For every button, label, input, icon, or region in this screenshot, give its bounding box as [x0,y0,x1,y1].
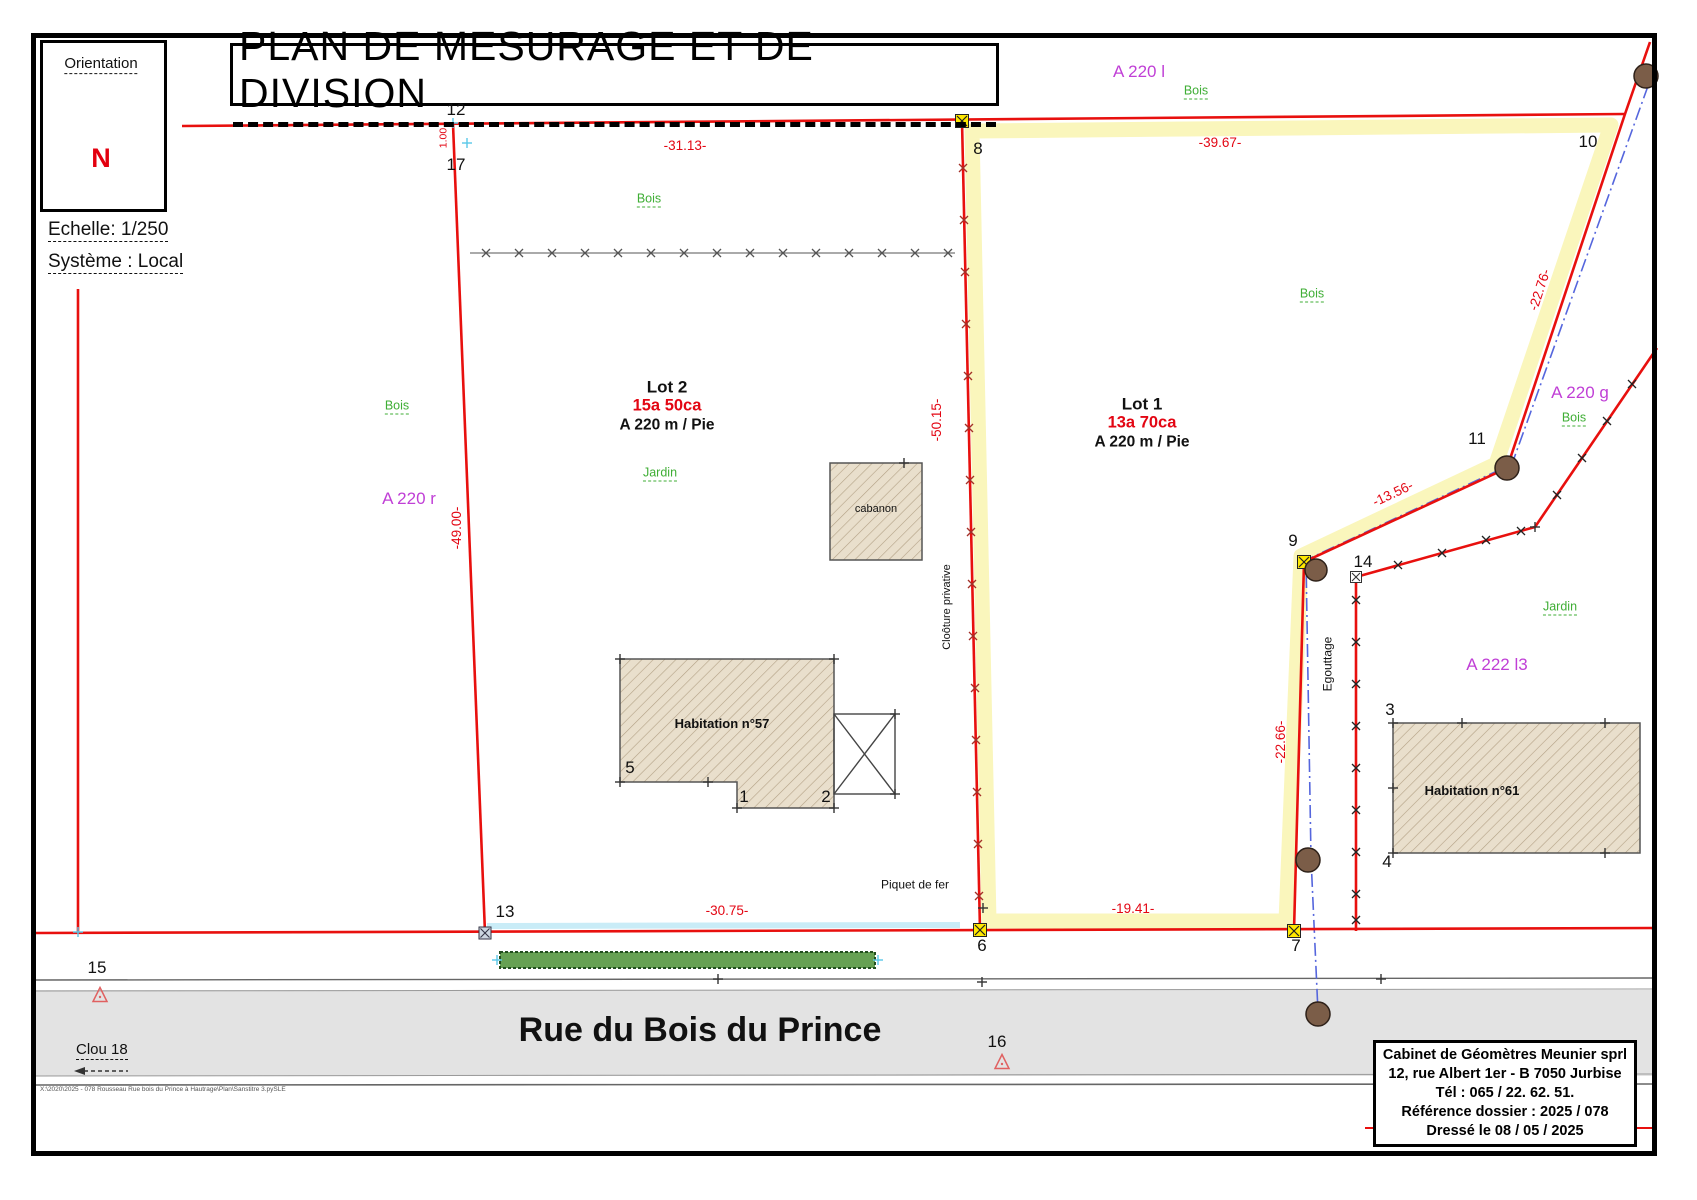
lot1-cadastre: A 220 m / Pie [1094,434,1189,450]
system-label: Système : Local [48,252,183,272]
plan-title: PLAN DE MESURAGE ET DE DIVISION [233,23,996,127]
survey-plan-page: PLAN DE MESURAGE ET DE DIVISION Orientat… [0,0,1697,1200]
point-5: 5 [625,759,634,777]
street-name: Rue du Bois du Prince [519,1013,882,1049]
orientation-label: Orientation [64,56,137,72]
building-habitation-57 [620,659,834,808]
lot2-block: Lot 2 15a 50ca A 220 m / Pie [619,378,714,433]
cartouche-phone: Tél : 065 / 22. 62. 51. [1376,1084,1634,1103]
file-path: X:\2020\2025 - 078 Rousseau Rue bois du … [40,1087,286,1094]
building-annex-cross [834,714,895,794]
bois-label-1: Bois [1184,84,1208,97]
lot2-name: Lot 2 [619,378,714,396]
measure-50-15: -50.15- [930,399,944,442]
measure-49-00: -49.00- [450,507,464,550]
hedge [492,952,883,968]
piquet-de-fer-label: Piquet de fer [881,879,949,892]
parcel-a220l: A 220 l [1113,63,1165,81]
point-9: 9 [1288,532,1297,550]
point-17: 17 [447,156,466,174]
point-14: 14 [1354,553,1373,571]
lot1-block: Lot 1 13a 70ca A 220 m / Pie [1094,395,1189,450]
egouttage-chambers [1296,64,1658,1026]
cartouche-address: 12, rue Albert 1er - B 7050 Jurbise [1376,1065,1634,1084]
point-12: 12 [447,101,466,119]
lot1-area: 13a 70ca [1094,414,1189,431]
sheet-frame [34,36,1655,1154]
measure-22-66: -22.66- [1274,721,1288,764]
point-16: 16 [988,1033,1007,1051]
lot1-name: Lot 1 [1094,395,1189,413]
cartouche-date: Dressé le 08 / 05 / 2025 [1376,1122,1634,1141]
parcel-a220g: A 220 g [1551,384,1609,402]
point-13: 13 [496,903,515,921]
fence-line-top [470,249,955,257]
cloture-privative-label: Cloôture privative [942,564,954,650]
point-clou-18: Clou 18 [76,1042,128,1058]
cyan-utility-line [487,925,960,926]
parcel-a220r: A 220 r [382,490,436,508]
habitation-61-label: Habitation n°61 [1425,784,1520,798]
cartouche: Cabinet de Géomètres Meunier sprl 12, ru… [1373,1040,1637,1147]
egouttage-line [1306,86,1648,1012]
measure-31-13: -31.13- [664,139,707,153]
point-2: 2 [821,788,830,806]
point-11: 11 [1468,430,1486,448]
measure-1-00: 1.00 [438,128,449,148]
point-3: 3 [1385,701,1394,719]
bois-label-3: Bois [1300,287,1324,300]
point-6: 6 [977,937,986,955]
habitation-57-label: Habitation n°57 [675,717,770,731]
scale-label: Echelle: 1/250 [48,220,168,240]
parcel-a222l3: A 222 l3 [1466,656,1527,674]
north-letter: N [91,144,111,172]
jardin-label-1: Jardin [643,466,677,479]
lot2-cadastre: A 220 m / Pie [619,417,714,433]
cartouche-firm: Cabinet de Géomètres Meunier sprl [1376,1046,1634,1065]
lot2-area: 15a 50ca [619,397,714,414]
cartouche-reference: Référence dossier : 2025 / 078 [1376,1103,1634,1122]
cabanon-label: cabanon [855,504,897,516]
measure-19-41: -19.41- [1112,902,1155,916]
point-8: 8 [973,140,982,158]
point-10: 10 [1579,133,1598,151]
point-15: 15 [88,959,107,977]
point-4: 4 [1382,853,1391,871]
bois-label-5: Bois [1562,411,1586,424]
point-7: 7 [1291,937,1300,955]
point-1: 1 [739,788,748,806]
bois-label-4: Bois [385,399,409,412]
measure-30-75: -30.75- [706,904,749,918]
bois-label-2: Bois [637,192,661,205]
measure-39-67: -39.67- [1199,136,1242,150]
plan-title-box: PLAN DE MESURAGE ET DE DIVISION [230,43,999,106]
egouttage-label: Egouttage [1322,637,1335,692]
jardin-label-2: Jardin [1543,600,1577,613]
